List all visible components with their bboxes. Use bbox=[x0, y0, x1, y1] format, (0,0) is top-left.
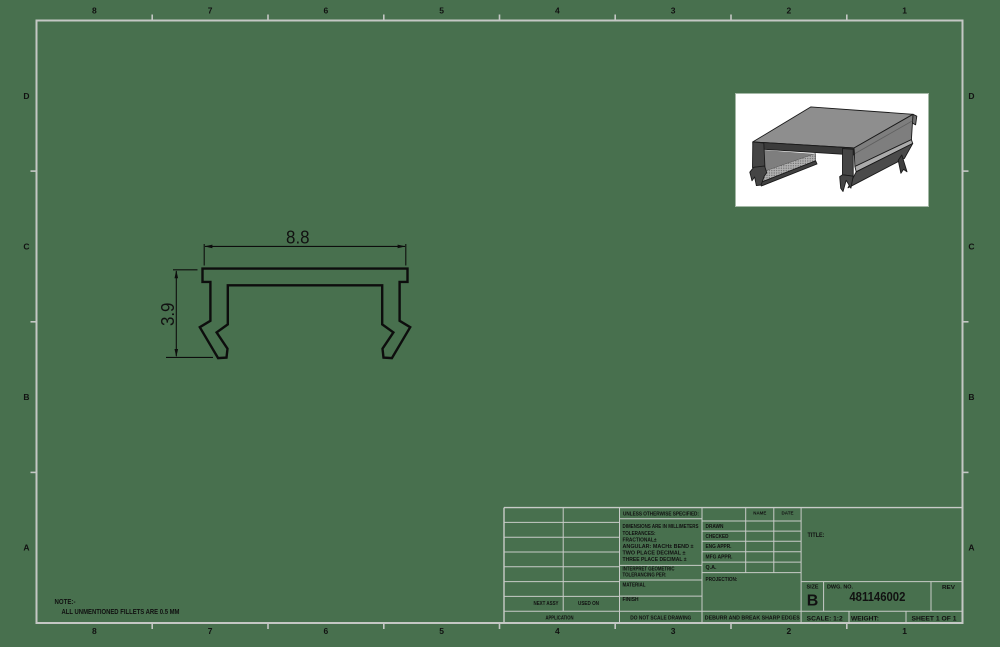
svg-text:B: B bbox=[968, 392, 974, 402]
svg-text:TOLERANCING PER:: TOLERANCING PER: bbox=[623, 573, 667, 579]
svg-text:1: 1 bbox=[902, 6, 907, 16]
svg-text:REV: REV bbox=[942, 585, 955, 591]
svg-text:SHEET 1 OF 1: SHEET 1 OF 1 bbox=[912, 616, 957, 623]
svg-text:ENG APPR.: ENG APPR. bbox=[706, 544, 732, 550]
svg-text:NAME: NAME bbox=[753, 511, 767, 517]
svg-text:5: 5 bbox=[439, 626, 444, 636]
svg-text:B: B bbox=[807, 593, 819, 610]
svg-text:C: C bbox=[968, 241, 974, 251]
svg-text:D: D bbox=[968, 91, 974, 101]
svg-text:NOTE:-: NOTE:- bbox=[55, 597, 76, 606]
svg-text:DO NOT SCALE DRAWING: DO NOT SCALE DRAWING bbox=[630, 616, 691, 622]
svg-text:6: 6 bbox=[324, 626, 329, 636]
svg-text:USED ON: USED ON bbox=[578, 601, 599, 607]
svg-text:A: A bbox=[968, 543, 974, 553]
svg-text:A: A bbox=[23, 543, 29, 553]
svg-text:4: 4 bbox=[555, 626, 560, 636]
svg-text:CHECKED: CHECKED bbox=[706, 534, 729, 540]
svg-text:481146002: 481146002 bbox=[849, 590, 905, 604]
svg-text:DATE: DATE bbox=[782, 511, 795, 517]
svg-text:1: 1 bbox=[902, 626, 907, 636]
svg-text:UNLESS OTHERWISE SPECIFIED:: UNLESS OTHERWISE SPECIFIED: bbox=[623, 512, 699, 518]
svg-text:TWO PLACE DECIMAL ±: TWO PLACE DECIMAL ± bbox=[623, 551, 686, 557]
svg-text:WEIGHT:: WEIGHT: bbox=[851, 616, 879, 623]
svg-text:6: 6 bbox=[324, 6, 329, 16]
svg-text:7: 7 bbox=[208, 6, 213, 16]
svg-text:SIZE: SIZE bbox=[807, 585, 819, 591]
svg-text:DRAWN: DRAWN bbox=[706, 524, 724, 530]
svg-text:MFG APPR.: MFG APPR. bbox=[706, 555, 733, 561]
svg-text:MATERIAL: MATERIAL bbox=[623, 583, 647, 589]
svg-text:NEXT ASSY: NEXT ASSY bbox=[534, 601, 559, 607]
svg-text:7: 7 bbox=[208, 626, 213, 636]
svg-text:TOLERANCES:: TOLERANCES: bbox=[623, 531, 656, 537]
svg-text:3.9: 3.9 bbox=[157, 303, 178, 327]
svg-text:2: 2 bbox=[787, 626, 792, 636]
svg-text:FRACTIONAL±: FRACTIONAL± bbox=[623, 537, 657, 543]
svg-text:PROJECTION:: PROJECTION: bbox=[706, 577, 738, 583]
svg-text:2: 2 bbox=[787, 6, 792, 16]
svg-text:ANGULAR: MACH± BEND ±: ANGULAR: MACH± BEND ± bbox=[623, 544, 694, 550]
svg-text:TITLE:: TITLE: bbox=[808, 532, 825, 539]
svg-text:SCALE: 1:2: SCALE: 1:2 bbox=[807, 616, 843, 623]
svg-text:ALL UNMENTIONED FILLETS ARE 0.: ALL UNMENTIONED FILLETS ARE 0.5 MM bbox=[62, 607, 180, 616]
svg-text:DIMENSIONS ARE IN MILLIMETERS: DIMENSIONS ARE IN MILLIMETERS bbox=[623, 524, 699, 530]
svg-text:4: 4 bbox=[555, 6, 560, 16]
svg-text:DEBURR AND BREAK SHARP EDGES: DEBURR AND BREAK SHARP EDGES bbox=[705, 616, 801, 622]
svg-text:FINISH: FINISH bbox=[623, 597, 639, 603]
svg-text:Q.A.: Q.A. bbox=[706, 565, 718, 571]
svg-text:D: D bbox=[23, 91, 29, 101]
svg-text:B: B bbox=[23, 392, 29, 402]
svg-text:8: 8 bbox=[92, 6, 97, 16]
svg-text:APPLICATION: APPLICATION bbox=[546, 616, 574, 622]
svg-text:3: 3 bbox=[671, 6, 676, 16]
svg-text:THREE PLACE DECIMAL ±: THREE PLACE DECIMAL ± bbox=[623, 557, 687, 563]
svg-text:8: 8 bbox=[92, 626, 97, 636]
svg-text:3: 3 bbox=[671, 626, 676, 636]
svg-text:C: C bbox=[23, 241, 29, 251]
svg-text:5: 5 bbox=[439, 6, 444, 16]
svg-text:8.8: 8.8 bbox=[286, 227, 310, 248]
